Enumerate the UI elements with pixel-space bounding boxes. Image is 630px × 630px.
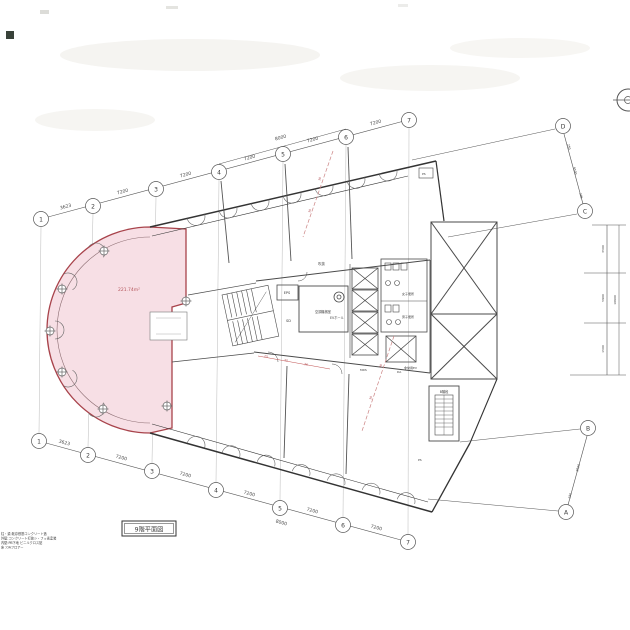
svg-text:7200: 7200	[306, 507, 319, 516]
svg-text:5900: 5900	[601, 294, 605, 302]
svg-text:9500: 9500	[575, 463, 581, 471]
far-right-dimension-chain: 3500 5900 1500 10900	[570, 225, 626, 375]
scanned-floor-plan-page: 221.74m²	[0, 0, 630, 630]
svg-text:7200: 7200	[179, 171, 192, 180]
svg-text:床 :OAフロアー: 床 :OAフロアー	[1, 545, 23, 550]
void-label: 吹抜	[318, 261, 326, 266]
north-compass-icon	[613, 89, 630, 111]
svg-text:8000: 8000	[275, 519, 288, 528]
svg-text:3500: 3500	[601, 245, 605, 253]
building-outline	[150, 161, 497, 512]
scan-smudges	[35, 38, 590, 131]
elevator-shafts	[350, 264, 378, 358]
grid-bubble-bottom-2: 2	[86, 453, 90, 460]
shaft-notch	[150, 312, 187, 340]
x-braced-void	[431, 222, 497, 379]
stair-b	[429, 386, 459, 441]
svg-text:柱・梁:既存鉄筋コンクリート造: 柱・梁:既存鉄筋コンクリート造	[1, 531, 48, 536]
grid-bubble-bottom-1: 1	[37, 439, 41, 446]
svg-text:7200: 7200	[306, 136, 319, 145]
grid-bubble-B: B	[586, 426, 590, 433]
svg-text:1500: 1500	[601, 345, 605, 353]
sd-label: SD	[286, 319, 291, 323]
emergency-elevator	[386, 336, 416, 362]
grid-bubble-top-5: 5	[281, 152, 285, 159]
drawing-title: 9階平面図	[135, 526, 164, 534]
grid-bubble-top-7: 7	[407, 118, 411, 125]
grid-bubble-bottom-6: 6	[341, 523, 345, 530]
grid-bubble-top-4: 4	[217, 170, 221, 177]
svg-text:36: 36	[304, 362, 309, 367]
grid-bubble-top-1: 1	[39, 217, 43, 224]
svg-text:7200: 7200	[115, 454, 128, 463]
tenant-area-label: 221.74m²	[118, 287, 140, 293]
right-dimension-chains: D C B A 250 9500 205 9500 250	[412, 119, 596, 520]
svg-text:7200: 7200	[369, 119, 382, 128]
da-label: DA	[397, 370, 402, 374]
svg-text:8000: 8000	[274, 134, 287, 143]
grid-bubble-bottom-7: 7	[406, 540, 410, 547]
svg-text:7200: 7200	[370, 524, 383, 533]
mds-label: MDS	[360, 368, 367, 372]
svg-text:250: 250	[567, 492, 572, 499]
stair-a	[222, 285, 279, 346]
grid-bubble-bottom-3: 3	[150, 469, 154, 476]
grid-bubble-top-6: 6	[344, 135, 348, 142]
grid-bubble-D: D	[561, 124, 566, 131]
grid-bubble-bottom-4: 4	[214, 488, 218, 495]
floor-plan-drawing: 221.74m²	[0, 0, 630, 630]
emergency-ev-label: 非常用EV	[404, 365, 418, 370]
svg-text:250: 250	[566, 143, 571, 150]
grid-bubble-top-2: 2	[91, 204, 95, 211]
grid-bubble-bottom-5: 5	[278, 506, 282, 513]
eps-label: EPS	[284, 291, 291, 295]
svg-text:3623: 3623	[59, 203, 72, 212]
grid-bubble-top-3: 3	[154, 187, 158, 194]
svg-text:7200: 7200	[116, 188, 129, 197]
ev-hall-label: EVホール	[330, 315, 345, 320]
stair-b-label: B階段	[440, 389, 449, 394]
ps2-label: PS	[418, 458, 422, 462]
svg-text:10900: 10900	[613, 295, 617, 305]
svg-text:外壁:コンクリート打放シ・フッ素塗装: 外壁:コンクリート打放シ・フッ素塗装	[1, 536, 57, 541]
svg-text:205: 205	[578, 192, 583, 199]
scan-artifacts	[6, 4, 408, 39]
ac-machine-room	[299, 286, 348, 332]
svg-text:30: 30	[317, 176, 322, 181]
ps1-label: PS	[422, 172, 426, 176]
svg-text:内壁:PB下地 ビニルクロス貼: 内壁:PB下地 ビニルクロス貼	[1, 540, 43, 545]
core	[172, 168, 433, 374]
womens-wc-label: 女子便所	[402, 291, 414, 296]
mens-wc-label: 男子便所	[402, 314, 414, 319]
grid-bubble-C: C	[583, 209, 587, 216]
title-block: 9階平面図	[122, 521, 176, 536]
svg-text:7200: 7200	[179, 471, 192, 480]
svg-text:3623: 3623	[58, 439, 71, 448]
red-annotations: 30 36 30 36 25 30 36	[258, 151, 394, 431]
legend-notes: 柱・梁:既存鉄筋コンクリート造 外壁:コンクリート打放シ・フッ素塗装 内壁:PB…	[1, 531, 57, 550]
svg-text:30: 30	[284, 358, 289, 363]
ac-room-label: 空調機械室	[315, 309, 331, 314]
svg-text:9500: 9500	[572, 167, 578, 175]
svg-text:36: 36	[307, 208, 312, 213]
svg-text:25: 25	[264, 354, 269, 359]
